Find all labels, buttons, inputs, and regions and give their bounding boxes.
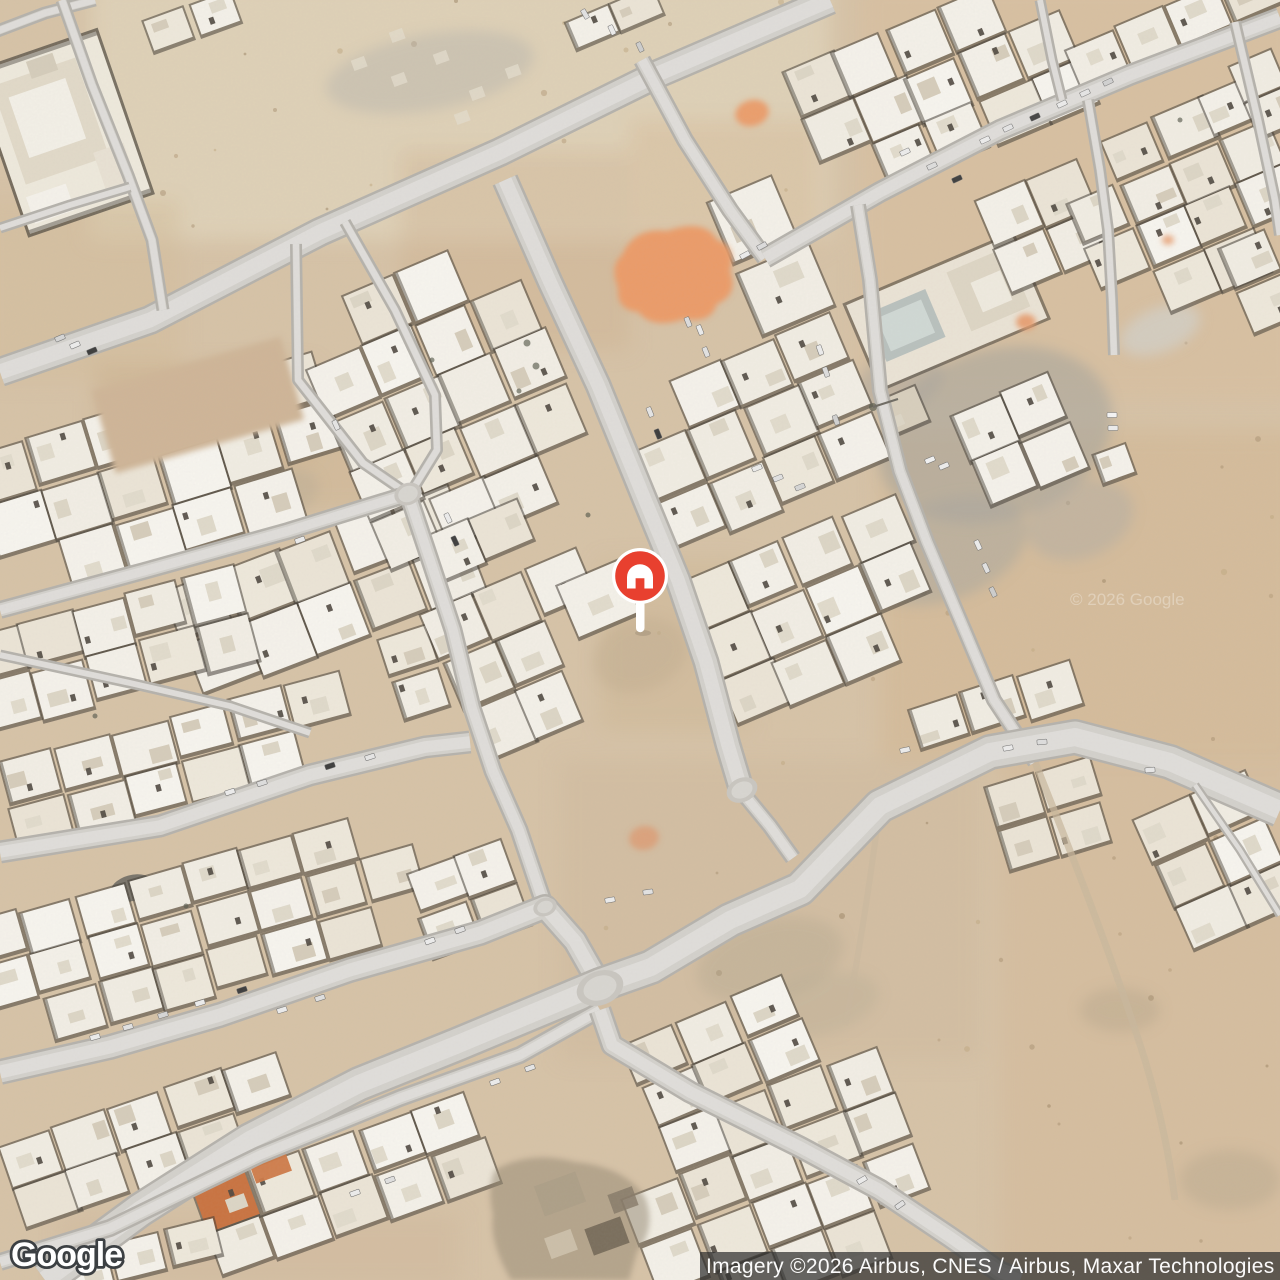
svg-text:© 2026 Google: © 2026 Google: [1070, 590, 1185, 609]
svg-text:Imagery ©2026 Airbus, CNES / A: Imagery ©2026 Airbus, CNES / Airbus, Max…: [706, 1255, 1275, 1278]
svg-text:Google: Google: [11, 1236, 122, 1274]
